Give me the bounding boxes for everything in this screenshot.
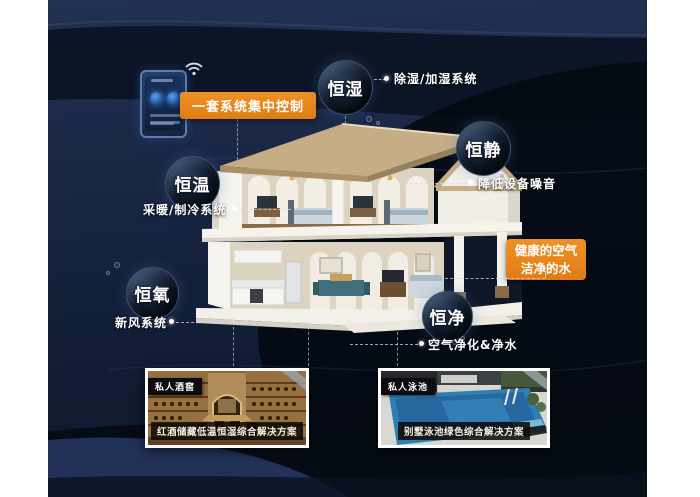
bullet-dot	[468, 180, 473, 185]
phone-screen	[145, 76, 182, 131]
connector-line	[239, 209, 291, 210]
phone-screen-titlebar	[151, 79, 173, 82]
bubble-label: 恒湿	[328, 75, 364, 100]
bubble-label: 恒温	[175, 171, 211, 196]
note-heating-cooling: 采暖/制冷系统	[143, 201, 226, 218]
note-fresh-air: 新风系统	[115, 314, 167, 331]
photo-caption-wine: 红酒储藏低温恒湿综合解决方案	[151, 422, 303, 440]
decor-bubble	[106, 271, 110, 275]
note-noise: 降低设备噪音	[478, 175, 556, 192]
note-purification: 空气净化&净水	[428, 336, 517, 353]
bubble-heng-shi: 恒湿	[318, 60, 373, 115]
poster-page: 一套系统集中控制 恒湿 除湿/加湿系统 恒静 降低设备噪音 恒温 采暖/制冷系统…	[0, 0, 700, 497]
bullet-dot	[169, 319, 174, 324]
photo-tag-pool: 私人泳池	[381, 378, 435, 395]
bubble-label: 恒静	[466, 136, 502, 161]
bullet-dot	[384, 76, 389, 81]
bubble-heng-yang: 恒氧	[126, 267, 179, 320]
pool-photo: 私人泳池 别墅泳池绿色综合解决方案	[378, 368, 550, 448]
note-dehumidify: 除湿/加湿系统	[394, 70, 477, 87]
wine-cellar-photo: 私人酒窖 红酒储藏低温恒湿综合解决方案	[145, 368, 309, 448]
decor-bubble	[114, 262, 120, 268]
central-control-label: 一套系统集中控制	[180, 92, 316, 119]
control-knob-icon	[150, 92, 163, 105]
highlight-line-2: 洁净的水	[510, 260, 582, 278]
bubble-heng-jing: 恒静	[456, 121, 511, 176]
connector-line	[176, 322, 305, 323]
control-knob-icon	[167, 92, 180, 105]
bubble-heng-jing-clean: 恒净	[422, 291, 473, 342]
decor-bubble	[376, 121, 380, 125]
photo-caption-pool: 别墅泳池绿色综合解决方案	[398, 422, 530, 440]
phone-screen-row	[150, 122, 174, 125]
bubble-label: 恒氧	[135, 281, 171, 306]
bubble-label: 恒净	[430, 304, 466, 329]
connector-line	[445, 278, 545, 279]
decor-bubble	[366, 116, 372, 122]
photo-tag-wine: 私人酒窖	[148, 378, 202, 395]
poster-canvas: 一套系统集中控制 恒湿 除湿/加湿系统 恒静 降低设备噪音 恒温 采暖/制冷系统…	[48, 0, 647, 497]
bullet-dot	[419, 341, 424, 346]
healthy-air-water-box: 健康的空气 洁净的水	[506, 239, 586, 280]
phone-screen-row	[150, 114, 180, 117]
wifi-icon	[184, 58, 204, 76]
highlight-line-1: 健康的空气	[510, 242, 582, 260]
connector-line	[400, 183, 468, 184]
connector-line	[350, 344, 418, 345]
bullet-dot	[232, 206, 237, 211]
connector-line	[545, 271, 546, 278]
